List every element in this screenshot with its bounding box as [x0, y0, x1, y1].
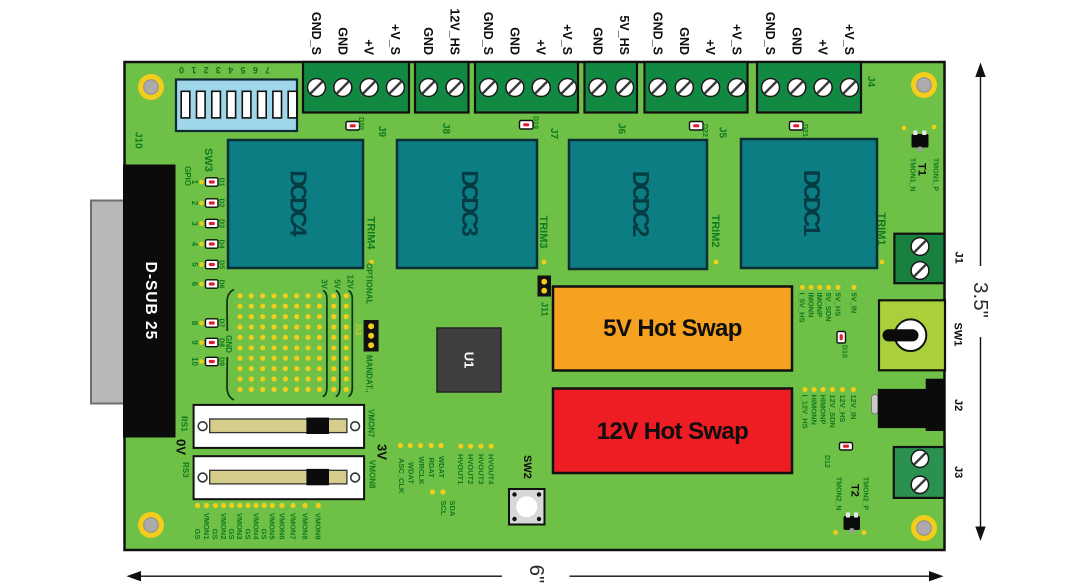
svg-text:VMON4: VMON4: [251, 513, 260, 541]
svg-text:3: 3: [190, 221, 199, 226]
svg-text:GND: GND: [335, 27, 349, 55]
svg-text:WDAT: WDAT: [406, 462, 415, 484]
svg-text:1: 1: [190, 180, 199, 185]
svg-text:10: 10: [190, 357, 199, 366]
svg-text:J2: J2: [952, 399, 964, 411]
svg-text:DCDC3: DCDC3: [457, 170, 483, 236]
svg-text:D21: D21: [801, 124, 808, 137]
svg-text:TMON1_N: TMON1_N: [909, 158, 916, 191]
svg-text:J7: J7: [548, 128, 559, 140]
svg-text:TMON1_P: TMON1_P: [932, 158, 939, 191]
svg-text:DCDC1: DCDC1: [799, 170, 825, 237]
svg-text:D10: D10: [841, 345, 848, 358]
svg-text:VMON8: VMON8: [300, 513, 309, 540]
svg-text:12V Hot Swap: 12V Hot Swap: [597, 418, 749, 445]
svg-text:GND: GND: [224, 335, 233, 353]
svg-text:+V_S: +V_S: [560, 24, 574, 55]
svg-text:U1: U1: [462, 352, 477, 369]
svg-text:6: 6: [190, 282, 199, 287]
svg-text:J1: J1: [953, 252, 965, 264]
svg-text:D3: D3: [218, 219, 225, 228]
svg-text:ASC_CLK: ASC_CLK: [397, 458, 406, 494]
svg-text:TMON2_P: TMON2_P: [862, 477, 869, 510]
svg-text:DCDC2: DCDC2: [628, 171, 654, 237]
svg-text:GS: GS: [211, 529, 220, 540]
svg-text:SW2: SW2: [521, 455, 533, 479]
svg-text:VMON5: VMON5: [268, 513, 277, 540]
svg-text:2: 2: [190, 201, 199, 206]
svg-text:RS3: RS3: [181, 462, 190, 478]
svg-text:D1: D1: [218, 178, 225, 187]
svg-text:3: 3: [216, 65, 221, 75]
svg-text:GND: GND: [421, 27, 435, 55]
svg-text:D4: D4: [218, 240, 225, 249]
svg-text:12V_IN: 12V_IN: [849, 395, 858, 420]
svg-text:3V: 3V: [320, 279, 329, 289]
svg-text:J5: J5: [716, 127, 727, 139]
svg-text:D22: D22: [701, 124, 708, 137]
svg-text:GND: GND: [590, 27, 604, 55]
svg-text:J10: J10: [132, 132, 143, 149]
svg-text:J11: J11: [539, 302, 549, 317]
svg-text:D8: D8: [218, 338, 225, 347]
svg-text:J9: J9: [376, 126, 387, 138]
svg-text:D19: D19: [532, 116, 539, 129]
svg-text:HVOUT2: HVOUT2: [466, 454, 475, 484]
svg-text:J3: J3: [952, 466, 964, 478]
svg-text:12V_SDN: 12V_SDN: [828, 395, 837, 428]
svg-text:D-SUB 25: D-SUB 25: [142, 262, 159, 341]
svg-text:8: 8: [190, 321, 199, 326]
svg-text:7: 7: [265, 65, 270, 75]
svg-text:SCL: SCL: [439, 501, 448, 516]
svg-text:GND: GND: [677, 27, 691, 55]
svg-text:+V_S: +V_S: [729, 24, 743, 55]
svg-text:TRIM1: TRIM1: [875, 213, 887, 246]
svg-text:J12: J12: [354, 323, 363, 336]
svg-text:12V_HS: 12V_HS: [838, 395, 847, 423]
svg-text:RS1: RS1: [180, 416, 189, 432]
svg-text:D20: D20: [357, 117, 364, 130]
svg-text:9: 9: [190, 340, 199, 345]
svg-text:0: 0: [179, 65, 184, 75]
svg-text:+V: +V: [362, 39, 376, 55]
svg-text:HVOUT3: HVOUT3: [476, 454, 485, 484]
svg-text:0V: 0V: [174, 439, 189, 455]
svg-text:5V_SDN: 5V_SDN: [824, 293, 833, 322]
svg-text:D5: D5: [218, 260, 225, 269]
svg-text:5V_HS: 5V_HS: [833, 293, 842, 317]
svg-text:5: 5: [240, 65, 245, 75]
svg-text:VMON6: VMON6: [277, 513, 286, 540]
svg-text:IMONN: IMONN: [806, 293, 815, 318]
svg-text:MANDAT.,: MANDAT.,: [365, 355, 374, 393]
svg-text:GND_S: GND_S: [481, 12, 495, 55]
svg-text:HIMONN: HIMONN: [809, 395, 818, 425]
svg-text:IMONP: IMONP: [815, 293, 824, 318]
svg-text:GND: GND: [507, 27, 521, 55]
svg-text:GS: GS: [227, 529, 236, 540]
svg-text:OPTIONAL: OPTIONAL: [365, 263, 374, 304]
svg-text:+V_S: +V_S: [388, 24, 402, 55]
svg-text:TRIM3: TRIM3: [537, 216, 549, 249]
svg-text:WDAT: WDAT: [437, 456, 446, 478]
svg-text:WRCLK: WRCLK: [417, 457, 426, 485]
svg-text:5V Hot Swap: 5V Hot Swap: [603, 315, 742, 342]
svg-text:+V: +V: [534, 39, 548, 55]
svg-text:2: 2: [204, 65, 209, 75]
svg-text:3.5": 3.5": [969, 282, 992, 318]
svg-text:RDAT: RDAT: [427, 458, 436, 479]
svg-text:VMON3: VMON3: [235, 513, 244, 540]
svg-text:6: 6: [253, 65, 258, 75]
svg-text:4: 4: [190, 242, 199, 247]
svg-text:I_5V_HS: I_5V_HS: [798, 293, 807, 323]
svg-text:GS: GS: [193, 529, 202, 540]
svg-text:VMON1: VMON1: [202, 513, 211, 540]
svg-text:4: 4: [228, 65, 233, 75]
svg-text:HVOUT1: HVOUT1: [456, 454, 465, 484]
svg-text:6": 6": [525, 565, 548, 584]
svg-text:GND_S: GND_S: [309, 12, 323, 55]
svg-text:1: 1: [191, 65, 196, 75]
svg-text:5V_IN: 5V_IN: [849, 293, 858, 314]
svg-text:12V: 12V: [346, 275, 355, 290]
svg-text:D9: D9: [218, 357, 225, 366]
svg-text:D6: D6: [218, 280, 225, 289]
svg-text:VMON9: VMON9: [314, 513, 323, 540]
svg-text:J6: J6: [615, 123, 626, 135]
svg-text:T1: T1: [916, 163, 928, 176]
svg-text:TRIM4: TRIM4: [365, 217, 377, 251]
svg-text:J8: J8: [440, 123, 451, 135]
svg-text:HIMONP: HIMONP: [818, 395, 827, 425]
svg-text:HVOUT4: HVOUT4: [487, 454, 496, 485]
svg-text:VMON7: VMON7: [366, 409, 375, 438]
svg-text:DCDC4: DCDC4: [286, 170, 312, 237]
svg-text:GND_S: GND_S: [763, 12, 777, 55]
svg-text:VMON8: VMON8: [368, 460, 377, 489]
svg-text:3V: 3V: [375, 444, 390, 460]
svg-text:+V_S: +V_S: [842, 24, 856, 55]
svg-text:D12: D12: [823, 455, 830, 468]
svg-text:5V: 5V: [333, 279, 342, 289]
svg-text:T2: T2: [849, 484, 861, 497]
svg-text:VMON2: VMON2: [219, 513, 228, 540]
svg-text:TRIM2: TRIM2: [709, 215, 721, 248]
svg-text:D7: D7: [218, 319, 225, 328]
svg-text:GND: GND: [789, 27, 803, 55]
svg-text:TMON2_N: TMON2_N: [835, 477, 842, 510]
svg-text:GND_S: GND_S: [651, 12, 665, 55]
svg-text:SW3: SW3: [202, 148, 214, 172]
svg-text:5: 5: [190, 262, 199, 267]
svg-text:I_12V_HS: I_12V_HS: [800, 395, 809, 429]
svg-text:VMON7: VMON7: [288, 513, 297, 540]
svg-text:GS: GS: [243, 529, 252, 540]
svg-text:+V: +V: [703, 39, 717, 55]
svg-text:+V: +V: [816, 39, 830, 55]
svg-text:SDA: SDA: [448, 501, 457, 517]
svg-text:5V_HS: 5V_HS: [617, 15, 631, 55]
svg-text:12V_HS: 12V_HS: [448, 8, 462, 55]
svg-text:J4: J4: [865, 76, 876, 88]
svg-text:SW1: SW1: [952, 323, 964, 347]
svg-text:GS: GS: [260, 529, 269, 540]
svg-text:D2: D2: [218, 199, 225, 208]
